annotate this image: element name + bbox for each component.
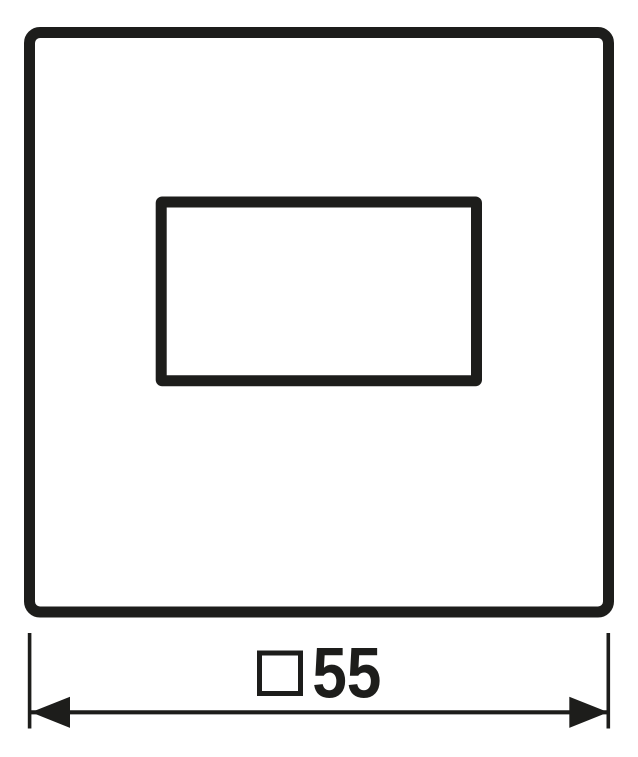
svg-text:55: 55 [312,634,381,714]
